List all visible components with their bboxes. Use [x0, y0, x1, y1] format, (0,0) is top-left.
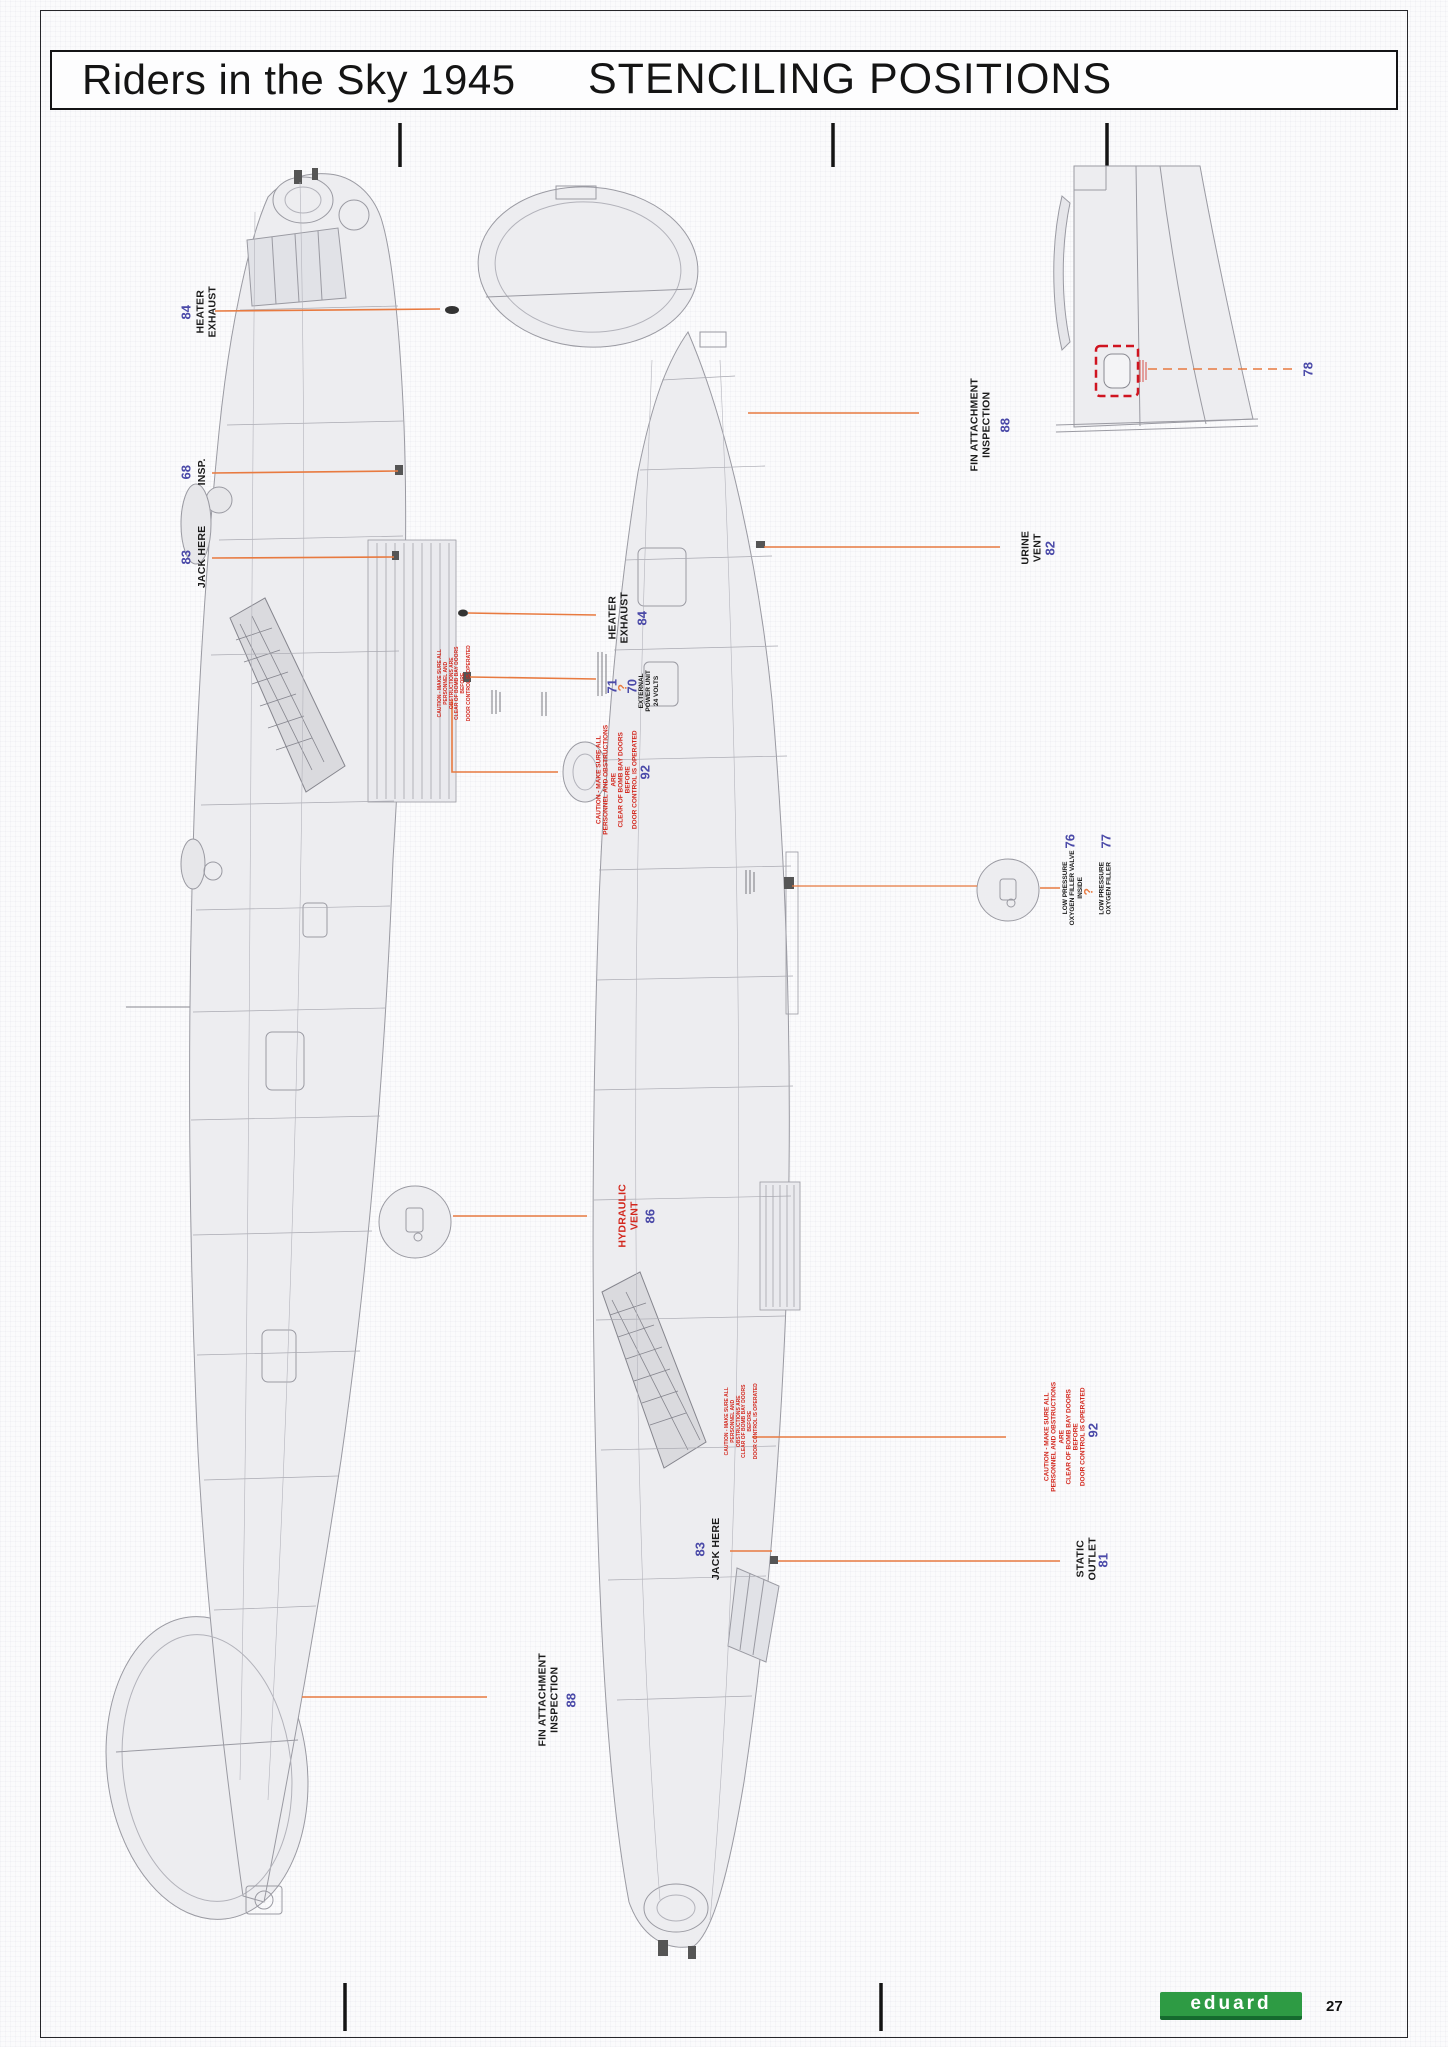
stencil-number-92-left: 92 [639, 757, 654, 787]
eduard-logo: eduard [1160, 1992, 1302, 2020]
stencil-label-external-power: EXTERNAL POWER UNIT 24 VOLTS [638, 641, 660, 741]
stencil-label-heater-exhaust-mid: HEATER EXHAUST [607, 573, 631, 663]
stencil-number-84-mid: 84 [636, 603, 651, 633]
stencil-label-fin-attachment-right: FIN ATTACHMENT INSPECTION [969, 365, 993, 485]
stencil-number-83: 83 [180, 542, 195, 572]
stencil-number-83-right: 83 [694, 1534, 709, 1564]
stencil-caution-text-left: CAUTION - MAKE SURE ALL PERSONNEL AND OB… [596, 722, 640, 837]
stencil-label-urine-vent: URINE VENT [1020, 503, 1044, 593]
stencil-label-hydraulic-vent: HYDRAULIC VENT [617, 1171, 641, 1261]
stencil-number-84: 84 [180, 297, 195, 327]
stencil-caution-decal-right: CAUTION - MAKE SURE ALL PERSONNEL AND OB… [725, 1381, 760, 1461]
stencil-caution-decal-left: CAUTION - MAKE SURE ALL PERSONNEL AND OB… [438, 643, 473, 723]
stencil-label-oxygen-filler: LOW PRESSURE OXYGEN FILLER [1099, 838, 1114, 938]
left-side-view-drawing [89, 168, 606, 1931]
stencil-number-88-left: 88 [565, 1685, 580, 1715]
stencil-number-68: 68 [180, 457, 195, 487]
stencil-unknown-mark-oxygen: ? [1082, 882, 1095, 902]
stencil-number-88-right: 88 [999, 410, 1014, 440]
stencil-number-78: 78 [1302, 354, 1317, 384]
page-number: 27 [1326, 1998, 1343, 2015]
stencil-label-jack-here-right: JACK HERE [711, 1504, 723, 1594]
stencil-label-jack-here: JACK HERE [197, 512, 209, 602]
stencil-number-92-right: 92 [1087, 1415, 1102, 1445]
stencil-caution-text-right: CAUTION - MAKE SURE ALL PERSONNEL AND OB… [1044, 1379, 1088, 1494]
stencil-label-fin-attachment-left: FIN ATTACHMENT INSPECTION [537, 1640, 561, 1760]
fin-detail-drawing [1054, 166, 1258, 432]
stencil-label-insp: INSP. [197, 427, 209, 517]
stencil-number-82: 82 [1044, 533, 1059, 563]
stencil-number-86: 86 [644, 1201, 659, 1231]
stencil-label-heater-exhaust: HEATER EXHAUST [195, 267, 219, 357]
stencil-number-81: 81 [1097, 1545, 1112, 1575]
